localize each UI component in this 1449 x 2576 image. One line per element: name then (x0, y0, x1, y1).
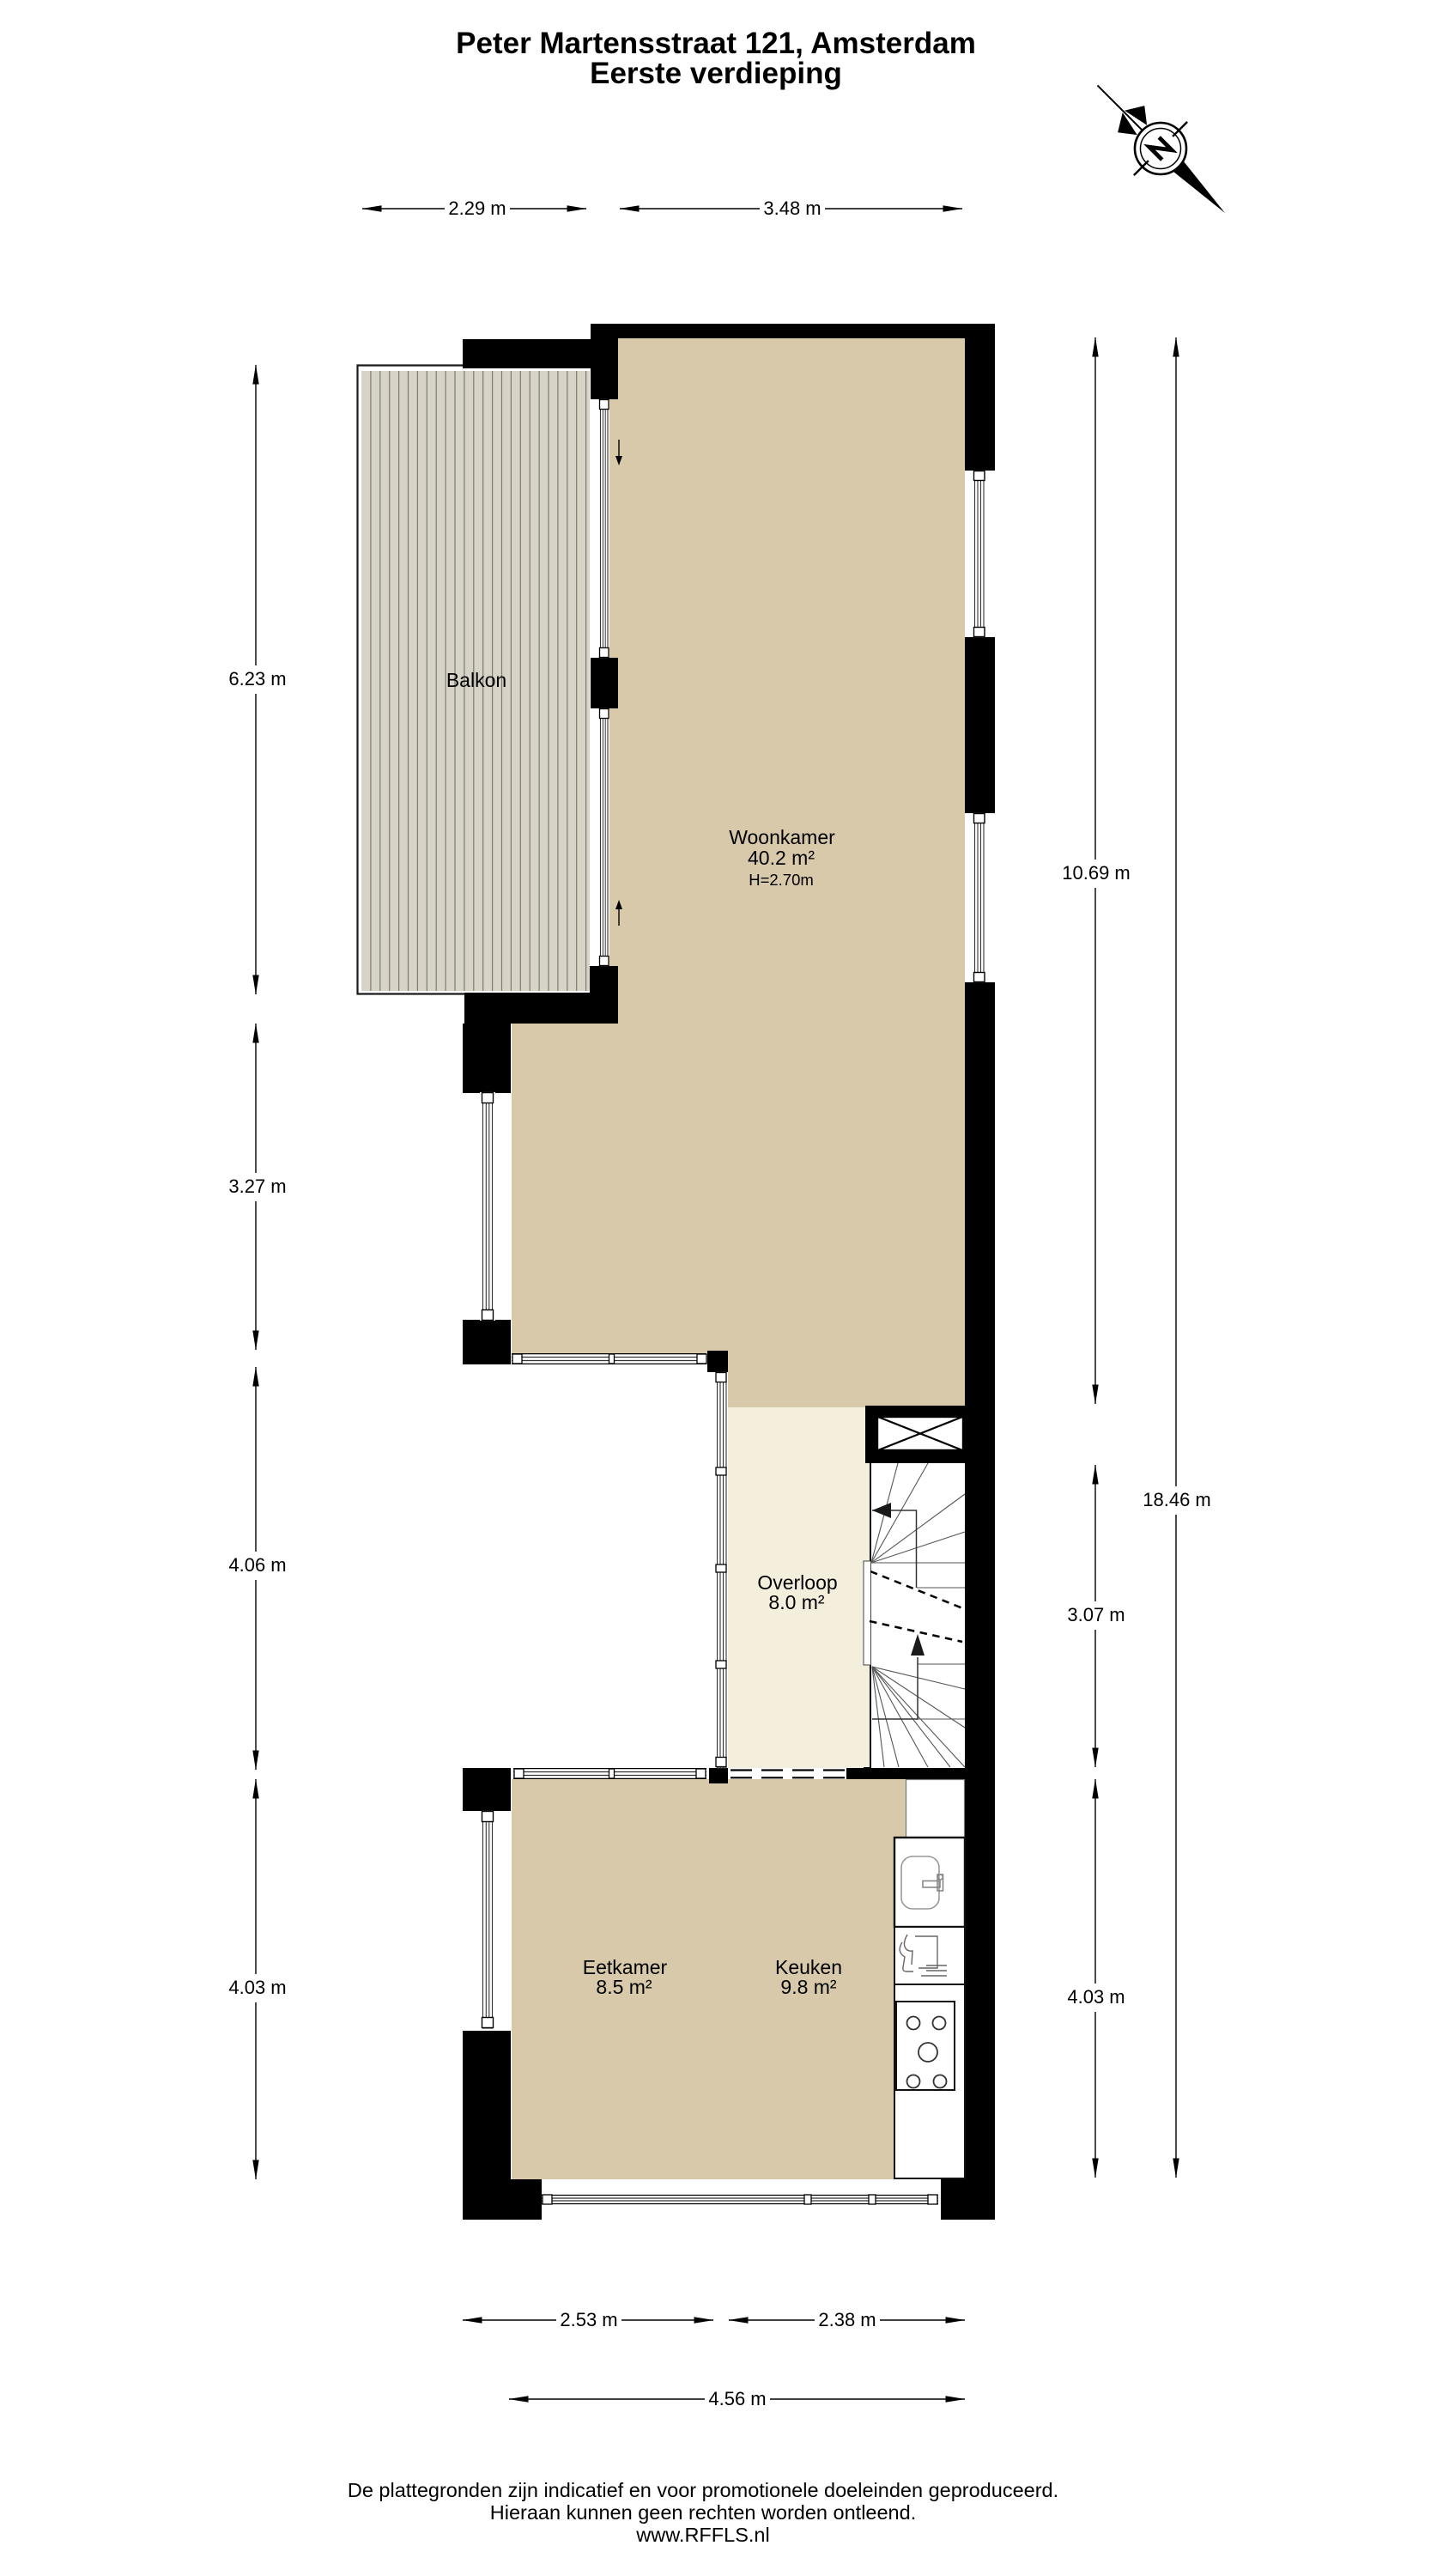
svg-text:De plattegronden zijn indicati: De plattegronden zijn indicatief en voor… (348, 2479, 1058, 2501)
svg-text:Hieraan kunnen geen rechten wo: Hieraan kunnen geen rechten worden ontle… (490, 2501, 916, 2524)
svg-text:3.27 m: 3.27 m (228, 1176, 286, 1197)
svg-text:Balkon: Balkon (446, 669, 506, 691)
svg-text:4.06 m: 4.06 m (228, 1554, 286, 1576)
svg-text:8.0 m²: 8.0 m² (768, 1591, 825, 1613)
svg-text:4.03 m: 4.03 m (1067, 1986, 1125, 2008)
svg-text:8.5 m²: 8.5 m² (596, 1976, 652, 1998)
svg-text:2.29 m: 2.29 m (448, 197, 506, 219)
svg-text:4.03 m: 4.03 m (228, 1977, 286, 1998)
svg-text:40.2 m²: 40.2 m² (748, 847, 815, 869)
svg-text:3.48 m: 3.48 m (763, 197, 821, 219)
svg-text:6.23 m: 6.23 m (228, 668, 286, 690)
svg-text:3.07 m: 3.07 m (1067, 1604, 1125, 1625)
svg-text:18.46 m: 18.46 m (1143, 1489, 1211, 1510)
svg-text:H=2.70m: H=2.70m (749, 871, 814, 889)
svg-text:10.69 m: 10.69 m (1062, 862, 1131, 884)
svg-text:www.RFFLS.nl: www.RFFLS.nl (635, 2524, 769, 2546)
svg-text:Peter Martensstraat 121, Amste: Peter Martensstraat 121, Amsterdam (456, 27, 976, 60)
svg-text:9.8 m²: 9.8 m² (780, 1976, 837, 1998)
svg-text:Woonkamer: Woonkamer (729, 826, 835, 848)
svg-text:2.38 m: 2.38 m (818, 2309, 876, 2330)
svg-text:4.56 m: 4.56 m (708, 2388, 766, 2409)
svg-text:Eerste verdieping: Eerste verdieping (590, 57, 842, 90)
svg-text:2.53 m: 2.53 m (560, 2309, 617, 2330)
